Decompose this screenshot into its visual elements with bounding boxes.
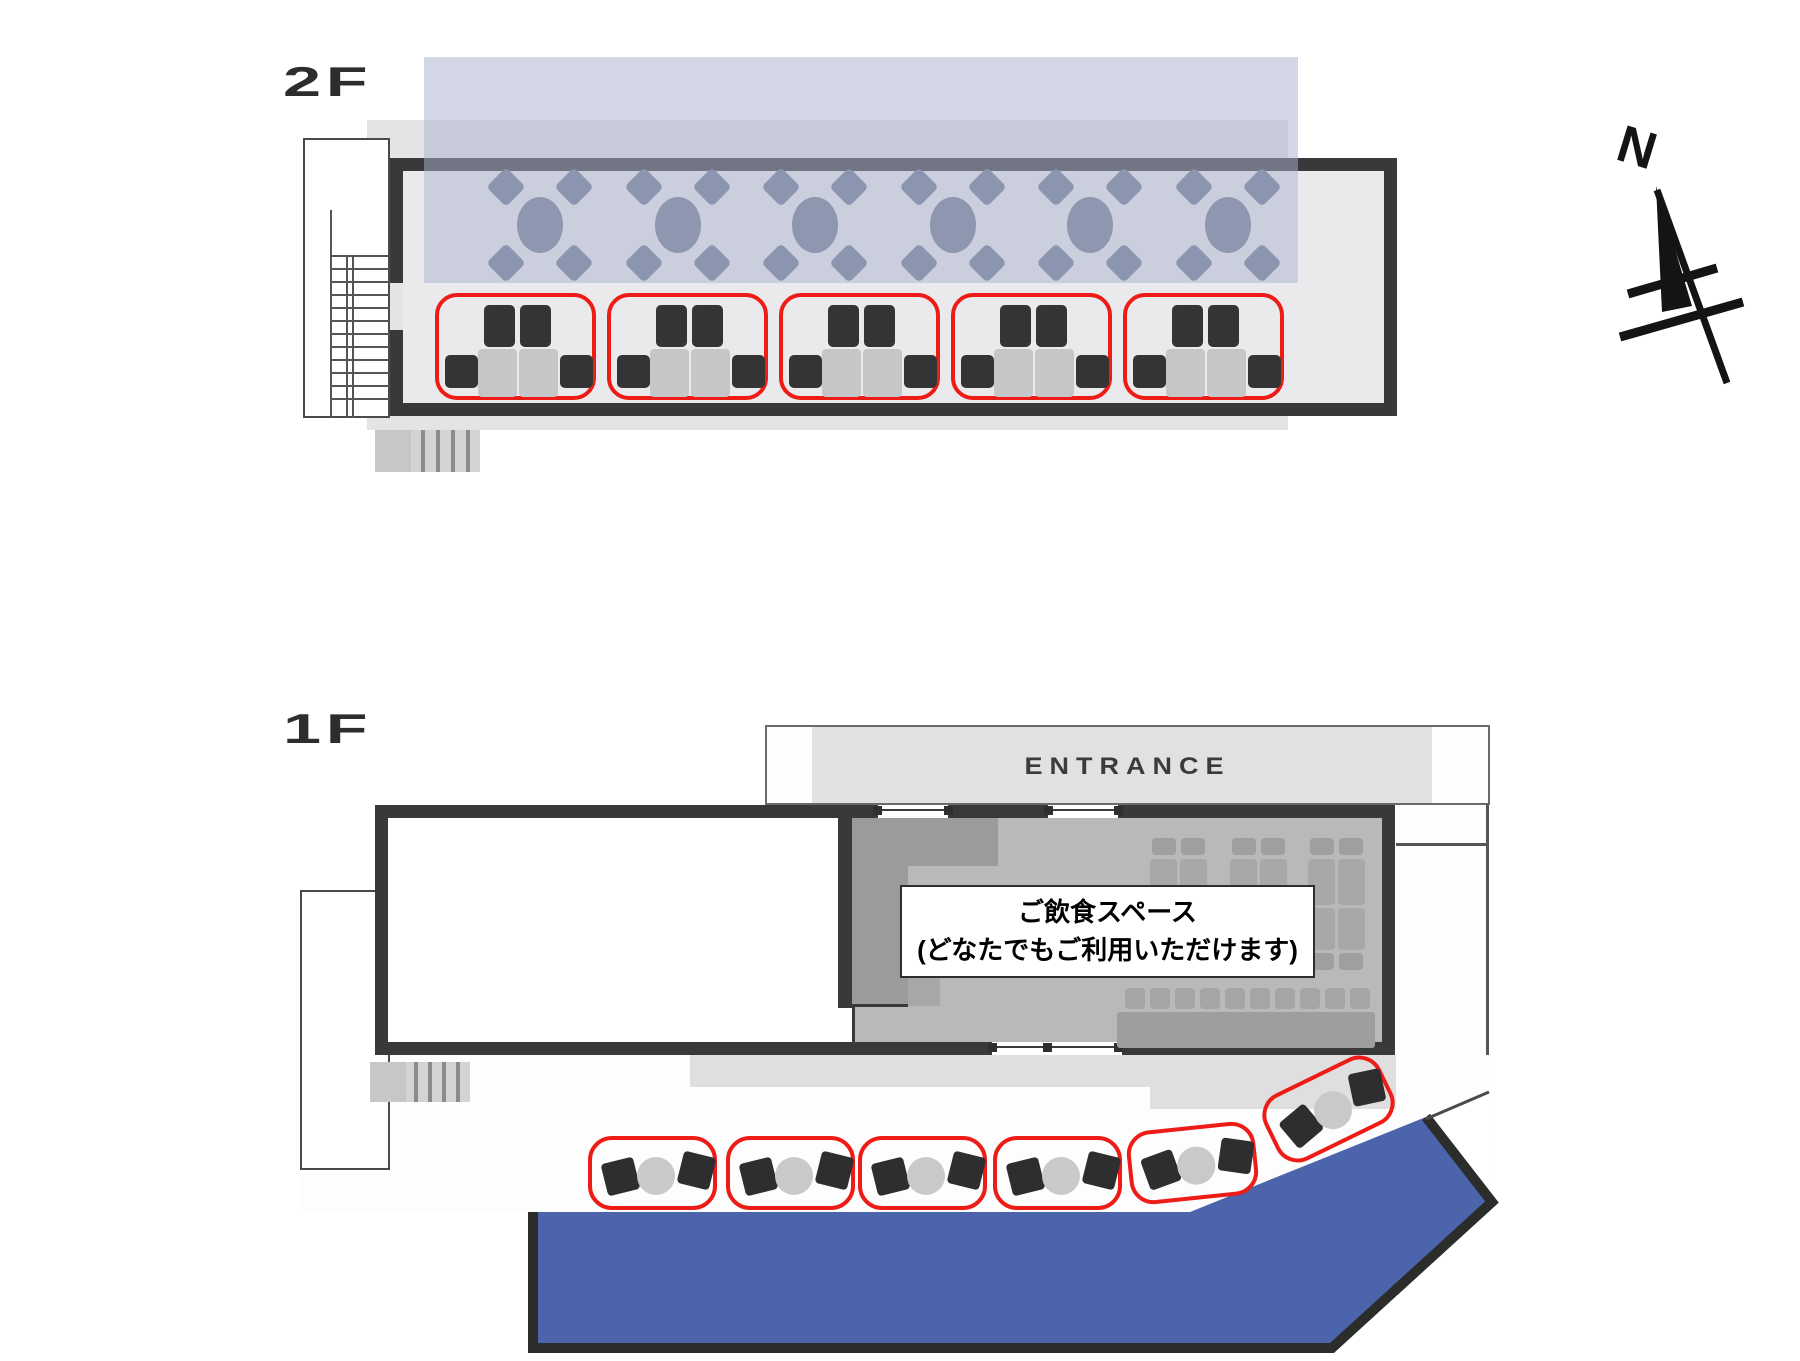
left-room-1f [388,818,838,1042]
terrace-chair [1081,1150,1121,1190]
entry-zone [852,818,998,866]
terrace-chair [1140,1149,1182,1191]
counter-chair [1150,988,1170,1009]
entrance-label: ENTRANCE [767,753,1488,781]
booth-chair [1000,305,1031,347]
booth-chair [484,305,515,347]
stair-tread [330,385,390,387]
booth-chair [656,305,687,347]
booth-group [779,293,940,400]
counter-chair [1125,988,1145,1009]
step-line [442,1062,446,1102]
reserved-zone-overlay [424,57,1298,283]
door-jamb [873,806,882,815]
stair-tread [330,372,390,374]
wall-2f-left-lower [390,330,403,416]
booth-chair [520,305,551,347]
step-line [436,430,440,472]
stair-tread [330,346,390,348]
terrace-chair [870,1156,910,1196]
chair [1339,838,1363,855]
terrace-table [1175,1145,1217,1187]
notice-line2: (どなたでもご利用いただけます) [917,932,1298,970]
step-line [466,430,470,472]
terrace-group [588,1136,717,1210]
wall-1f-top-b [948,805,1048,818]
counter-chair [1175,988,1195,1009]
stair-tread [330,268,390,270]
wall-2f-bottom [390,403,1397,416]
chair [1310,838,1334,855]
terrace-table [1042,1157,1080,1195]
booth-table [650,349,689,397]
walkway-divider [1396,843,1486,846]
booth-table [1166,349,1205,397]
compass: N [1600,100,1800,400]
booth-chair [828,305,859,347]
booth-chair [961,355,994,388]
terrace-group [726,1136,855,1210]
door-threshold [878,809,1118,811]
booth-chair [1208,305,1239,347]
counter-chair [1275,988,1295,1009]
stair-tread [330,294,390,296]
table [1338,908,1365,950]
stair-rail [330,210,332,418]
exterior-steps-2f [375,430,480,472]
booth-chair [1172,305,1203,347]
entrance-canopy: ENTRANCE [765,725,1490,805]
step-line [852,1004,908,1007]
door-jamb [944,806,953,815]
stair-tread [330,281,390,283]
booth-table [1035,349,1074,397]
floor-1f-label: 1F [283,705,372,753]
terrace-chair [600,1156,640,1196]
chair [1152,838,1176,855]
chair [1232,838,1256,855]
booth-group [1123,293,1284,400]
booth-chair [1076,355,1109,388]
booth-table [691,349,730,397]
booth-chair [864,305,895,347]
booth-table [863,349,902,397]
step-landing [370,1062,406,1102]
notice-box: ご飲食スペース (どなたでもご利用いただけます) [900,885,1315,978]
booth-table [994,349,1033,397]
step-line [852,1004,855,1042]
stair-tread [330,333,390,335]
booth-chair [692,305,723,347]
booth-chair [732,355,765,388]
counter-chair [1200,988,1220,1009]
terrace-chair [1217,1137,1254,1174]
booth-chair [445,355,478,388]
booth-chair [1036,305,1067,347]
booth-chair [617,355,650,388]
floor-plan-page: { "page": {"title": "Facility floor plan… [0,0,1800,1361]
chair [1181,838,1205,855]
booth-chair [1133,355,1166,388]
step-line [421,430,425,472]
terrace-chair [1347,1068,1386,1107]
booth-table [519,349,558,397]
stair-tread [330,359,390,361]
stair-tread [330,255,390,257]
wall-1f-right [1382,805,1395,1055]
stair-tread [330,320,390,322]
booth-chair [1248,355,1281,388]
step-landing [375,430,411,472]
booth-table [822,349,861,397]
booth-chair [560,355,593,388]
booth-table [478,349,517,397]
terrace-group [993,1136,1122,1210]
terrace-table [775,1157,813,1195]
step-line [428,1062,432,1102]
booth-group [435,293,596,400]
exterior-steps-1f [370,1062,470,1102]
terrace-table [637,1157,675,1195]
counter-chair [1325,988,1345,1009]
door-jamb [1044,806,1053,815]
booth-group [607,293,768,400]
step-line [414,1062,418,1102]
step-line [451,430,455,472]
notice-line1: ご飲食スペース [1018,894,1197,932]
counter-chair [1300,988,1320,1009]
wall-1f-divider [838,818,852,1008]
wall-2f-right [1384,158,1397,416]
wall-1f-top-c [1118,805,1395,818]
chair [1261,838,1285,855]
terrace-table [907,1157,945,1195]
counter-chair [1350,988,1370,1009]
booth-group [951,293,1112,400]
stair-rail [352,255,354,418]
stair-rail [346,255,348,418]
counter-chair [1250,988,1270,1009]
counter-chair [1225,988,1245,1009]
terrace-group [1124,1119,1260,1206]
booth-chair [904,355,937,388]
terrace-chair [946,1150,986,1190]
terrace-chair [676,1150,716,1190]
terrace-group [858,1136,987,1210]
step-line [456,1062,460,1102]
door-jamb [1114,806,1123,815]
booth-table [1207,349,1246,397]
stair-tread [330,398,390,400]
table [1338,859,1365,905]
terrace-chair [738,1156,778,1196]
stair-tread [330,307,390,309]
table-cluster [1308,838,1366,930]
chair [1339,953,1363,970]
terrace-chair [814,1150,854,1190]
terrace-chair [1005,1156,1045,1196]
wall-1f-left [375,805,388,1055]
booth-chair [789,355,822,388]
wall-2f-left-upper [390,158,403,283]
wall-1f-top-a [375,805,878,818]
floor-2f-label: 2F [283,58,372,106]
